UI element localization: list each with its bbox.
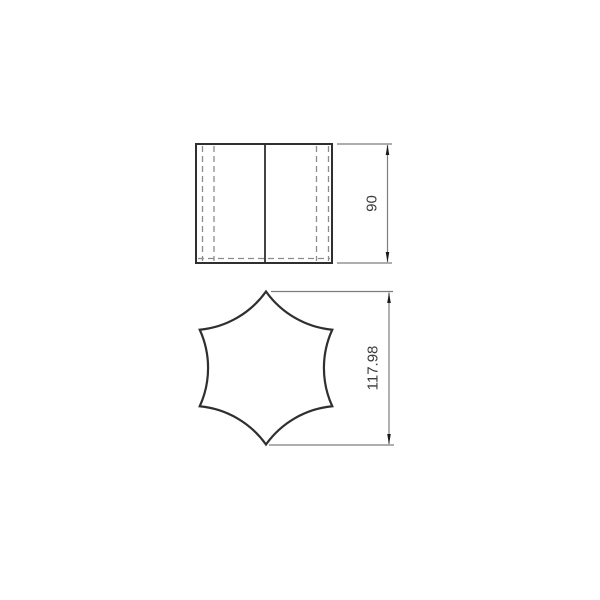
technical-drawing: 90 117.98 bbox=[0, 0, 600, 600]
dimension-label-front-height: 90 bbox=[364, 195, 381, 212]
arrowhead-up-icon bbox=[387, 293, 391, 304]
front-view-hidden-lines bbox=[198, 146, 330, 261]
arrowhead-up-icon bbox=[386, 145, 390, 156]
arrowhead-down-icon bbox=[386, 252, 390, 263]
dimension-label-profile-height: 117.98 bbox=[365, 346, 382, 391]
dimension-front-height: 90 bbox=[337, 144, 392, 263]
front-view bbox=[196, 144, 332, 263]
drawing-canvas: 90 117.98 bbox=[0, 0, 600, 600]
star-profile-view bbox=[200, 292, 333, 445]
star-outline bbox=[200, 292, 333, 445]
front-view-outline bbox=[196, 144, 332, 263]
arrowhead-down-icon bbox=[387, 434, 391, 445]
